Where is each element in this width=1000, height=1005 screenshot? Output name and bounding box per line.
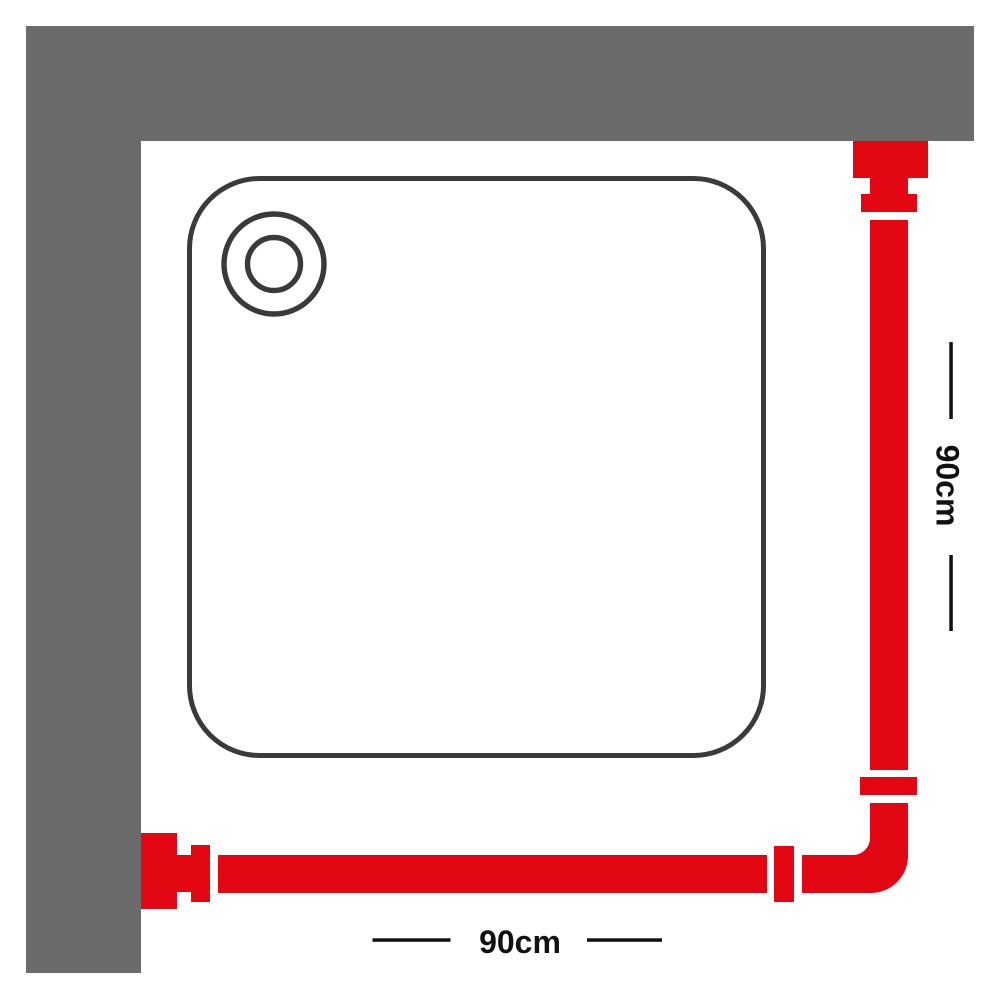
svg-text:90cm: 90cm <box>930 445 966 527</box>
svg-text:90cm: 90cm <box>479 924 561 960</box>
